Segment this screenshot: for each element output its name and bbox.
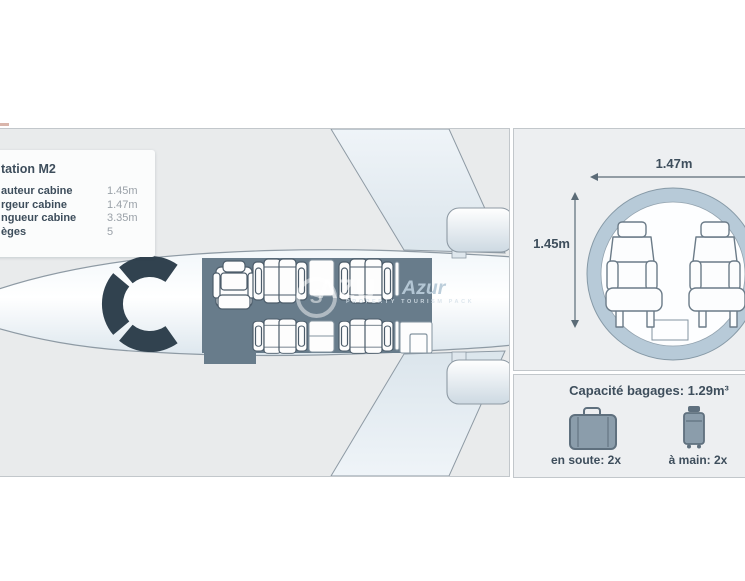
baggage-capacity-title: Capacité bagages: 1.29m³ xyxy=(539,383,745,398)
club-seat-pair-rear-right xyxy=(339,319,393,353)
hand-baggage-label: à main: 2x xyxy=(638,453,745,467)
baggage-panel: Capacité bagages: 1.29m³ en soute: 2x à … xyxy=(513,374,745,478)
single-seat xyxy=(213,261,255,309)
height-dimension-arrow xyxy=(571,192,579,328)
cabin-width-label: 1.47m xyxy=(646,156,702,171)
cabin-table-top xyxy=(309,260,334,296)
cross-section-panel: 1.47m 1.45m xyxy=(513,128,745,371)
aisle-notch xyxy=(652,320,688,340)
upper-engine-nacelle xyxy=(447,208,509,252)
partial-logo-mark xyxy=(0,123,9,126)
spec-row-height: auteur cabine 1.45m xyxy=(1,185,155,199)
cabin-specs-box: tation M2 auteur cabine 1.45m rgeur cabi… xyxy=(0,150,155,257)
club-seat-pair-rear-left xyxy=(339,259,393,303)
lower-engine-nacelle xyxy=(447,360,509,404)
spec-row-width: rgeur cabine 1.47m xyxy=(1,199,155,213)
rear-cabinet xyxy=(400,322,432,353)
club-seat-pair-front-right xyxy=(253,319,307,353)
partition-bottom xyxy=(395,321,399,350)
club-seat-pair-front-left xyxy=(253,259,307,303)
spec-row-seats: èges 5 xyxy=(1,226,155,240)
cabin-height-label: 1.45m xyxy=(524,236,570,251)
width-dimension-arrow xyxy=(590,173,745,181)
carry-on-icon xyxy=(680,404,708,452)
aircraft-layout-page: S AZU Azur PROPERTY TOURISM PACK tation … xyxy=(0,0,745,581)
aircraft-model-title: tation M2 xyxy=(1,162,155,176)
hold-baggage-label: en soute: 2x xyxy=(526,453,646,467)
spec-row-length: ngueur cabine 3.35m xyxy=(1,212,155,226)
top-view-panel: S AZU Azur PROPERTY TOURISM PACK tation … xyxy=(0,128,510,477)
entry-door-step xyxy=(204,353,256,364)
suitcase-icon xyxy=(568,405,620,453)
partition-top xyxy=(395,262,399,296)
